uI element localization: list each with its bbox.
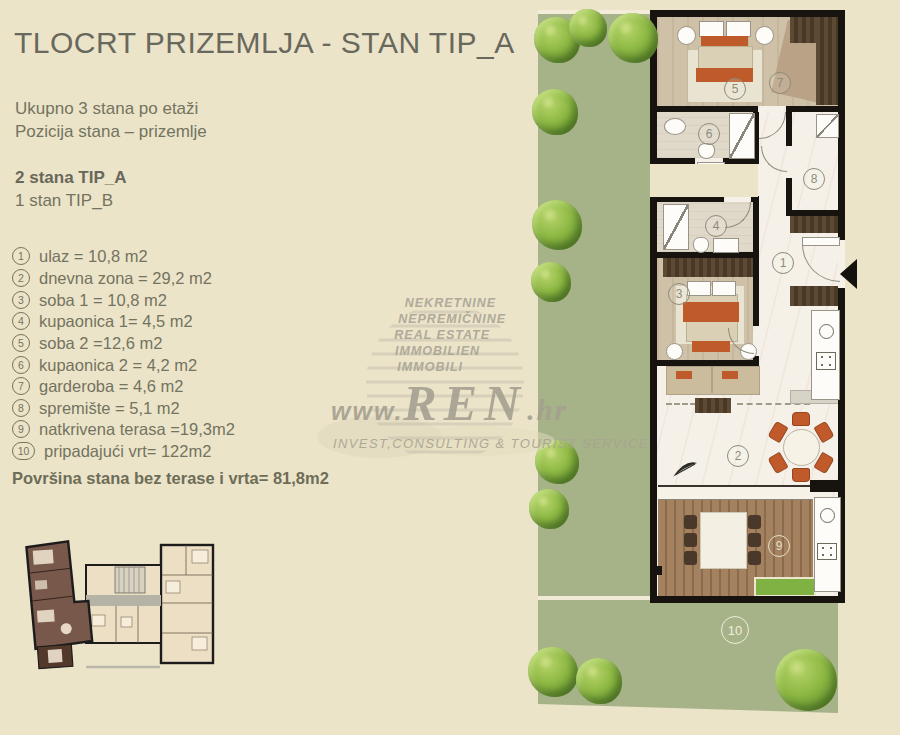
hall-wardrobe	[790, 216, 838, 233]
bathroom1-sink	[713, 238, 739, 253]
legend-num-2: 2	[12, 269, 30, 287]
building-overview-miniplan	[20, 537, 216, 673]
bathroom1-shower	[663, 204, 689, 250]
room-label-7: 7	[769, 72, 791, 94]
terrace-chair-l3	[684, 551, 697, 565]
agency-watermark: NEKRETNINE NEPREMIČNINE REAL ESTATE IMMO…	[325, 288, 583, 460]
floor-plan-sheet: TLOCRT PRIZEMLJA - STAN TIP_A Ukupno 3 s…	[0, 0, 900, 735]
legend-num-6: 6	[12, 356, 30, 374]
bedroom2-lamp-right	[755, 26, 774, 45]
entry-shoe-cabinet	[790, 286, 838, 306]
bathroom1-toilet	[693, 237, 709, 253]
bush-10	[576, 658, 622, 704]
bathroom2-shower	[729, 113, 755, 159]
legend-num-1: 1	[12, 247, 30, 265]
bush-2	[569, 9, 607, 47]
bedroom1-table-left	[666, 343, 683, 360]
watermark-line-en: REAL ESTATE	[394, 328, 490, 342]
tv-cabinet	[695, 398, 731, 413]
terrace-chair-l1	[684, 515, 697, 529]
living-sofa-divider	[711, 366, 713, 393]
bedroom1-pillow-right	[712, 281, 736, 296]
bedroom1-bench	[692, 341, 730, 352]
watermark-tagline: INVEST,CONSULTING & TOURIST SERVICE	[333, 436, 649, 451]
unit-count-tip-a: 2 stana TIP_A	[15, 166, 127, 189]
terrace-table	[700, 512, 747, 569]
terrace-sink-icon	[820, 508, 835, 523]
room-label-3: 3	[668, 283, 690, 305]
bedroom2-pillow-left	[699, 21, 724, 37]
intro-line-1: Ukupno 3 stana po etaži	[15, 97, 207, 120]
room-label-10: 10	[721, 616, 749, 644]
wall-bed1-bottom	[657, 360, 759, 366]
bedroom1-pillow-left	[687, 281, 711, 296]
unit-count-tip-b: 1 stan TIP_B	[15, 189, 127, 212]
terrace-chair-r3	[748, 551, 761, 565]
intro-block: Ukupno 3 stana po etaži Pozicija stana –…	[15, 97, 207, 143]
terrace-stove-icon	[817, 543, 837, 560]
room-label-8: 8	[803, 168, 825, 190]
bedroom2-bed-runner	[701, 36, 748, 46]
bedroom1-blanket	[683, 302, 739, 322]
garden-terrace-divider	[538, 596, 662, 600]
wall-top	[650, 10, 845, 17]
entrance-arrow-icon	[840, 259, 857, 289]
bedroom2-lamp-left	[677, 26, 696, 45]
living-dashed-line-left	[666, 403, 696, 405]
terrace-sliding-door	[658, 485, 813, 500]
terrace-door-hinge	[654, 566, 662, 575]
dining-table	[783, 429, 820, 466]
legend-num-8: 8	[12, 399, 30, 417]
intro-line-2: Pozicija stana – prizemlje	[15, 120, 207, 143]
watermark-ren: REN	[403, 374, 527, 432]
legend-item-10: 10 pripadajući vrt= 122m2	[12, 441, 211, 461]
bedroom2-footboard	[696, 68, 753, 82]
legend-item-1: 1 ulaz = 10,8 m2	[12, 246, 148, 266]
legend-item-4: 4 kupaonica 1= 4,5 m2	[12, 311, 193, 331]
garderoba-wardrobe-right	[816, 17, 839, 105]
bathroom2-sink	[664, 118, 686, 135]
sofa-cushion-left	[676, 371, 692, 379]
bedroom2-mattress	[698, 46, 753, 70]
kitchen-sink-icon	[819, 324, 834, 339]
legend-item-2: 2 dnevna zona = 29,2 m2	[12, 268, 212, 288]
watermark-www: www.	[331, 397, 403, 426]
bush-11	[775, 649, 837, 711]
legend-num-3: 3	[12, 291, 30, 309]
watermark-brand: www. REN .hr	[331, 374, 568, 432]
legend-num-10: 10	[12, 442, 35, 460]
bathroom2-toilet	[698, 143, 715, 159]
wall-bedrooms-bottom	[657, 106, 839, 112]
room-label-9: 9	[768, 535, 790, 557]
legend-item-6: 6 kupaonica 2 = 4,2 m2	[12, 355, 197, 375]
watermark-tld: .hr	[527, 394, 568, 427]
sofa-cushion-right	[722, 371, 738, 379]
legend-item-3: 3 soba 1 = 10,8 m2	[12, 290, 167, 310]
room-label-1: 1	[772, 252, 794, 274]
wall-terrace-corner	[810, 480, 845, 492]
dining-chair-n	[792, 412, 810, 426]
room-label-2: 2	[727, 445, 749, 467]
unit-count-block: 2 stana TIP_A 1 stan TIP_B	[15, 166, 127, 212]
bush-4	[532, 89, 578, 135]
watermark-line-de: IMMOBILIEN	[395, 344, 480, 358]
area-summary: Površina stana bez terase i vrta= 81,8m2	[12, 469, 329, 488]
bedroom1-wardrobe	[663, 258, 755, 277]
kitchen-stove-icon	[816, 352, 836, 370]
bedroom2-pillow-right	[726, 21, 751, 37]
miniplan-highlighted-apartment	[26, 540, 94, 669]
legend-num-4: 4	[12, 312, 30, 330]
terrace-chair-r2	[748, 533, 761, 547]
watermark-line-si: NEPREMIČNINE	[398, 312, 506, 326]
room-label-6: 6	[698, 123, 720, 145]
dining-chair-s	[792, 468, 810, 482]
bush-9	[528, 647, 578, 697]
room-label-5: 5	[724, 78, 746, 100]
floor-leaf-decor	[671, 455, 699, 479]
legend-num-5: 5	[12, 334, 30, 352]
facade-recess	[650, 164, 758, 197]
legend-num-9: 9	[12, 420, 30, 438]
legend-num-7: 7	[12, 377, 30, 395]
legend-item-7: 7 garderoba = 4,6 m2	[12, 376, 183, 396]
bush-5	[532, 200, 582, 250]
legend-item-9: 9 natkrivena terasa =19,3m2	[12, 419, 235, 439]
legend-item-5: 5 soba 2 =12,6 m2	[12, 333, 162, 353]
watermark-line-it: IMMOBILI	[397, 360, 463, 374]
wall-bottom	[650, 596, 845, 603]
room-label-4: 4	[705, 215, 727, 237]
bush-8	[529, 489, 569, 529]
legend-item-8: 8 spremište = 5,1 m2	[12, 398, 180, 418]
page-title: TLOCRT PRIZEMLJA - STAN TIP_A	[14, 26, 515, 60]
terrace-planter	[754, 577, 816, 597]
bush-3	[608, 13, 658, 63]
watermark-line-hr: NEKRETNINE	[405, 296, 496, 310]
storage-boiler	[816, 114, 839, 138]
wall-bath1-bottom	[657, 252, 759, 258]
terrace-chair-r1	[748, 515, 761, 529]
terrace-chair-l2	[684, 533, 697, 547]
wall-left	[650, 10, 657, 602]
